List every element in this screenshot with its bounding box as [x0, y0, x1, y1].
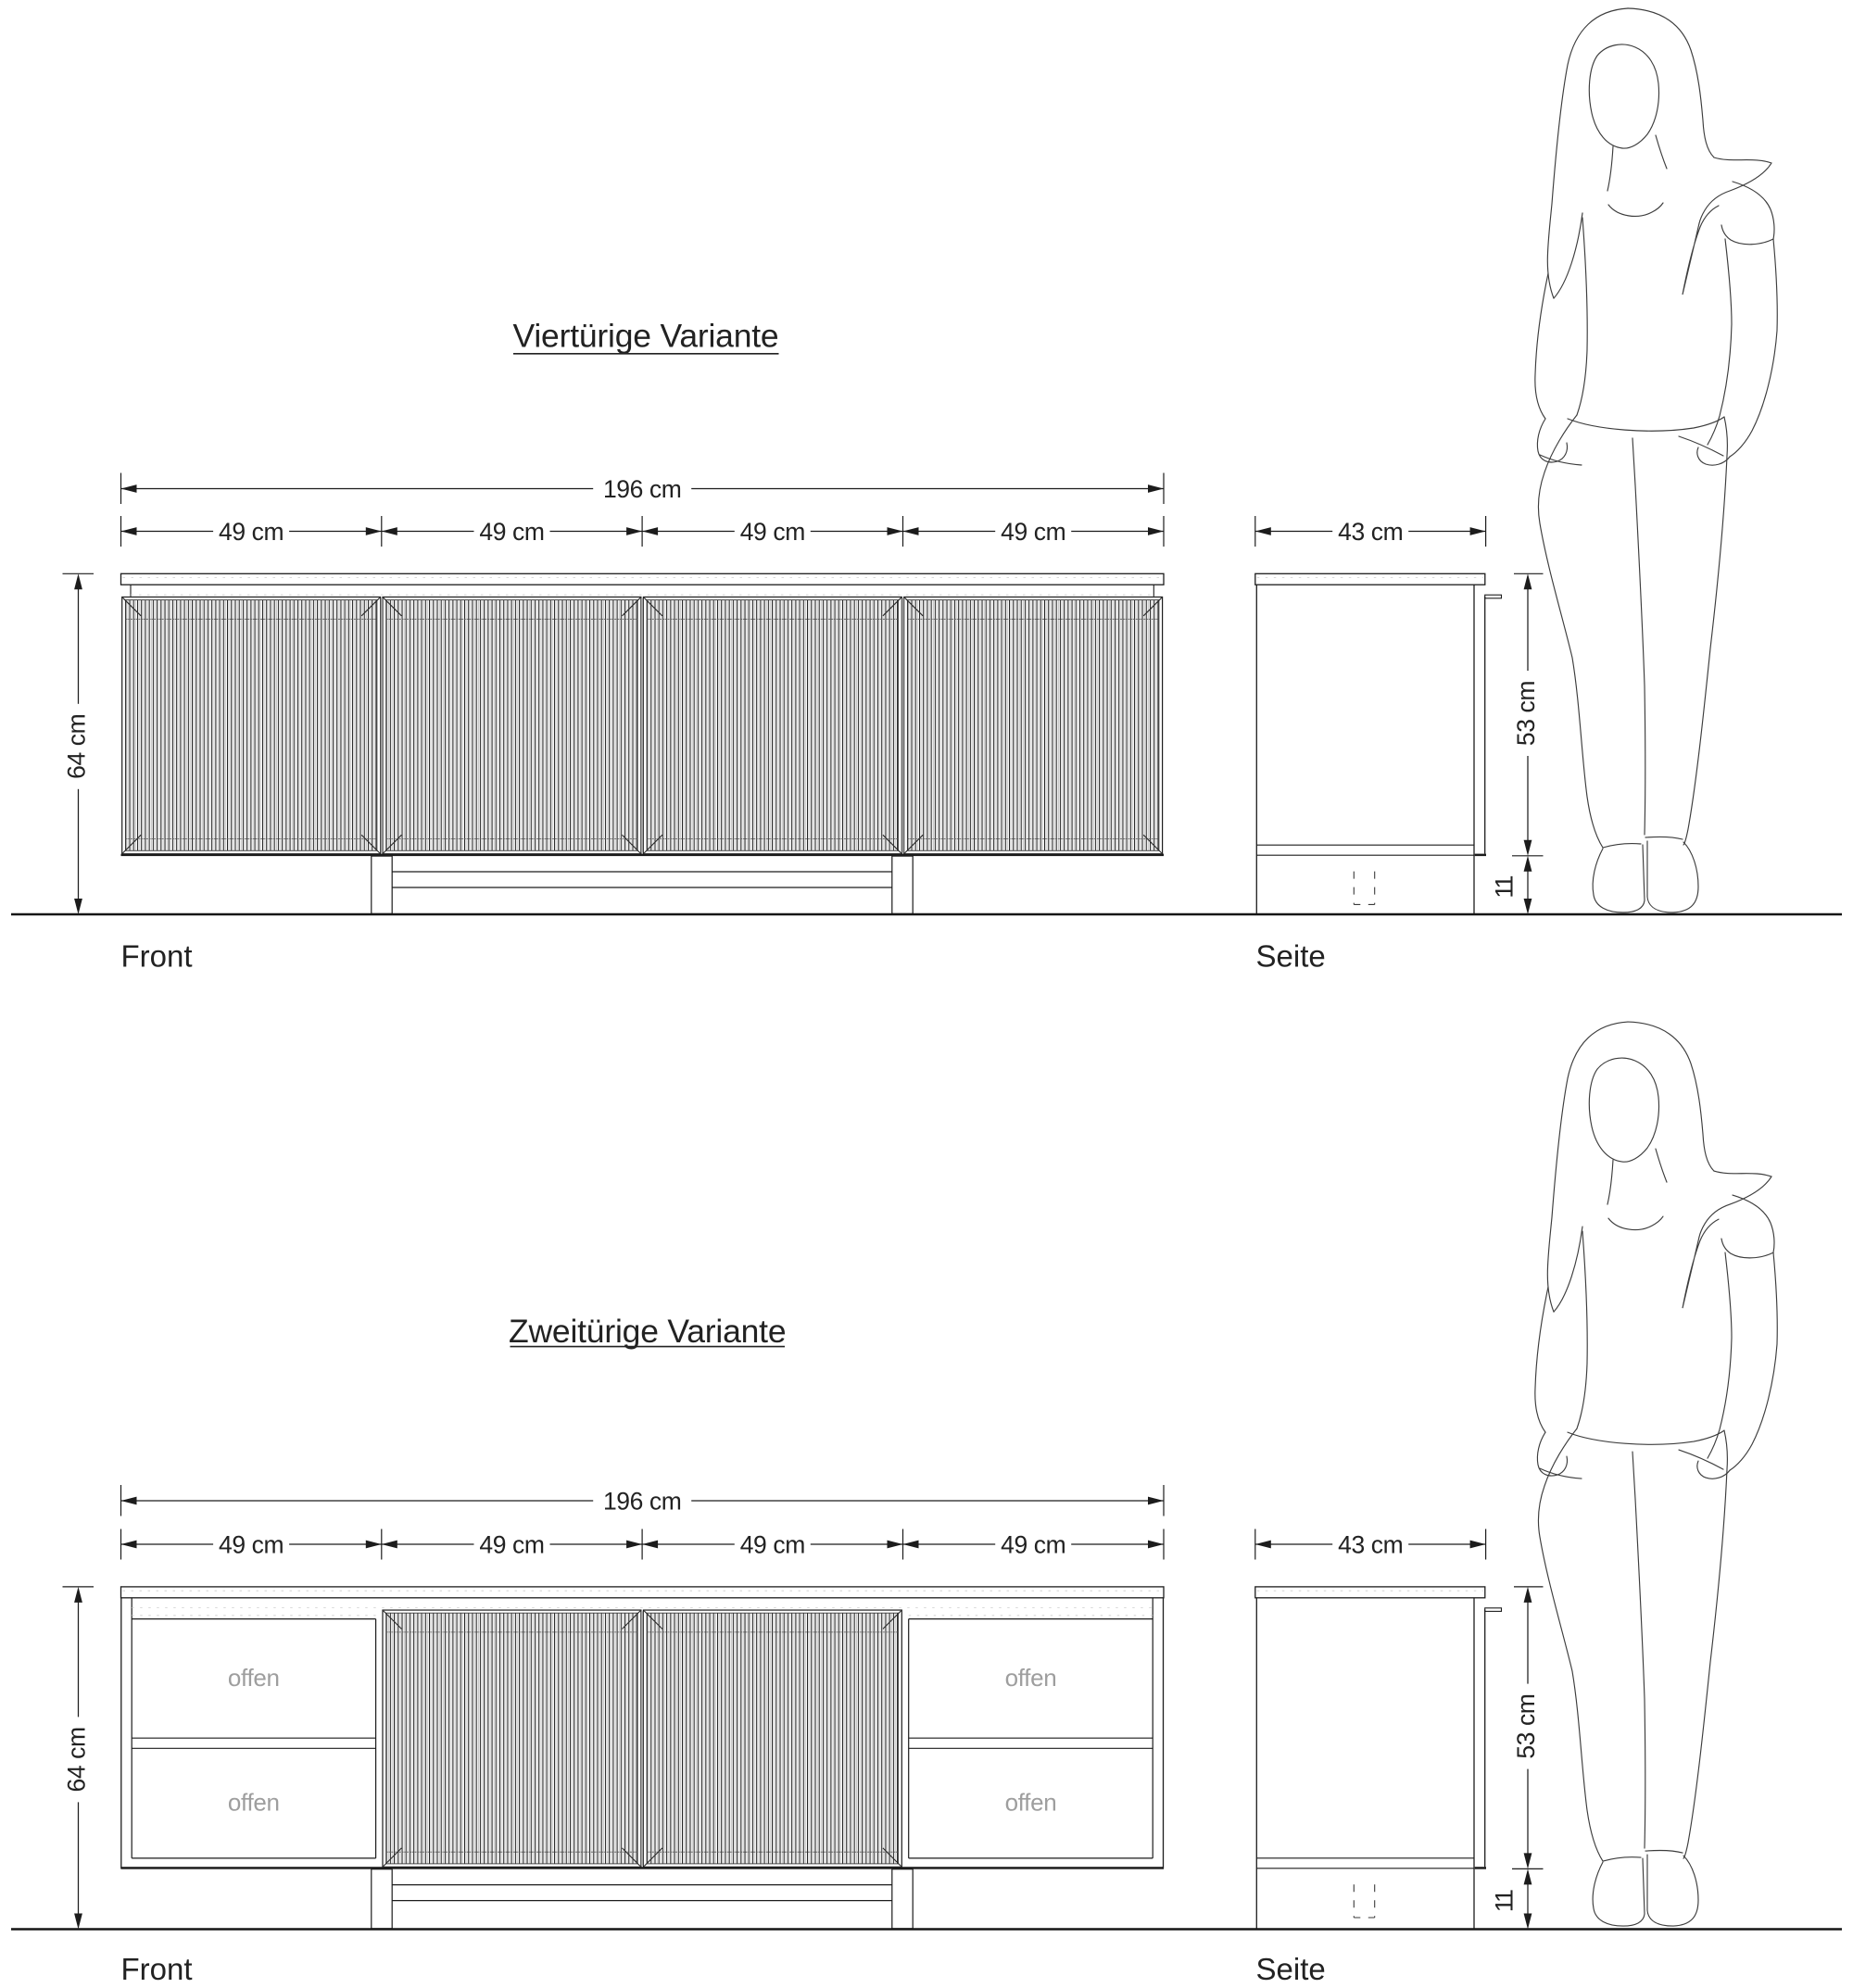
svg-text:49 cm: 49 cm [740, 1531, 805, 1559]
svg-text:11: 11 [1491, 1890, 1519, 1912]
svg-text:11: 11 [1491, 875, 1519, 898]
svg-text:Seite: Seite [1256, 1952, 1326, 1983]
svg-text:64 cm: 64 cm [63, 1727, 91, 1792]
svg-text:offen: offen [1005, 1789, 1057, 1817]
svg-text:53 cm: 53 cm [1512, 1694, 1540, 1759]
svg-text:49 cm: 49 cm [479, 518, 544, 546]
svg-text:196 cm: 196 cm [603, 1488, 682, 1516]
svg-text:196 cm: 196 cm [603, 475, 682, 503]
svg-text:49 cm: 49 cm [219, 518, 284, 546]
svg-text:Zweitürige Variante: Zweitürige Variante [509, 1313, 786, 1350]
svg-text:Seite: Seite [1256, 939, 1326, 974]
svg-text:Front: Front [121, 939, 193, 974]
svg-text:49 cm: 49 cm [219, 1531, 284, 1559]
svg-text:49 cm: 49 cm [1001, 1531, 1065, 1559]
svg-text:53 cm: 53 cm [1512, 681, 1540, 746]
svg-text:64 cm: 64 cm [63, 714, 91, 779]
svg-text:offen: offen [228, 1789, 280, 1817]
svg-text:49 cm: 49 cm [1001, 518, 1065, 546]
svg-text:offen: offen [1005, 1664, 1057, 1692]
svg-text:49 cm: 49 cm [740, 518, 805, 546]
svg-text:Viertürige Variante: Viertürige Variante [513, 318, 779, 355]
svg-text:offen: offen [228, 1664, 280, 1692]
svg-text:Front: Front [121, 1952, 193, 1983]
svg-text:49 cm: 49 cm [479, 1531, 544, 1559]
svg-text:43 cm: 43 cm [1338, 1531, 1403, 1559]
svg-text:43 cm: 43 cm [1338, 518, 1403, 546]
